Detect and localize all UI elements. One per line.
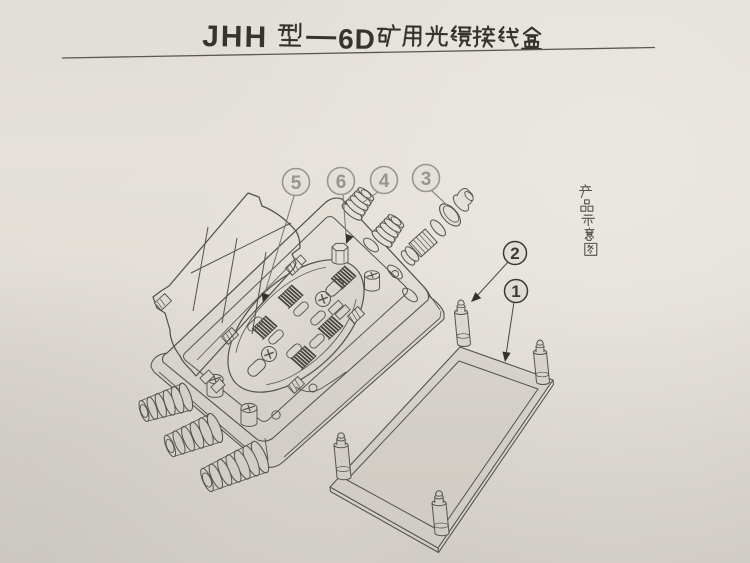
svg-text:5: 5 <box>291 173 302 194</box>
svg-text:JHH: JHH <box>202 20 269 54</box>
svg-text:2: 2 <box>510 244 519 263</box>
svg-text:6D: 6D <box>338 23 376 55</box>
svg-text:6: 6 <box>336 172 347 193</box>
svg-text:3: 3 <box>421 169 432 190</box>
svg-text:4: 4 <box>379 171 390 192</box>
svg-text:1: 1 <box>511 282 520 301</box>
